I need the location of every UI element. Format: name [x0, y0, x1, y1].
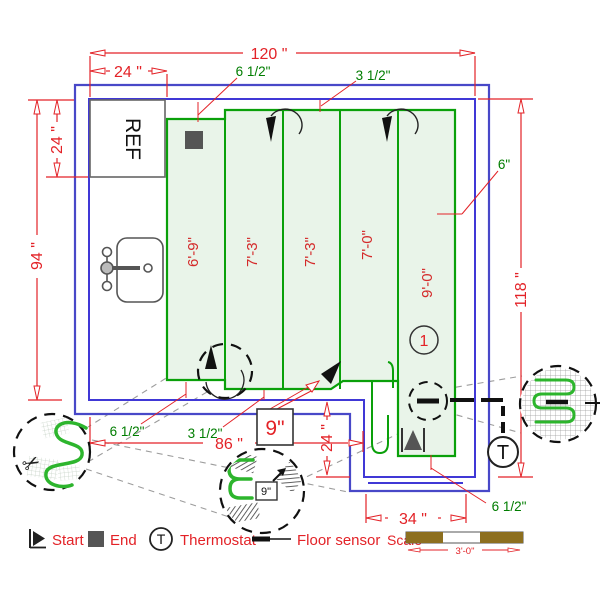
detail-circle-spacing: 9" [220, 449, 306, 533]
dim-step-depth: 24 " [319, 424, 336, 452]
scale-bar: 3'-0" [406, 532, 523, 557]
dim-ref-width: 24 " [114, 64, 142, 81]
thermostat-symbol: T [488, 437, 518, 467]
end-marker-square [185, 131, 203, 149]
clearance-top-left: 6 1/2" [236, 64, 271, 79]
legend-end-label: End [110, 532, 137, 549]
scale-length-label: 3'-0" [456, 546, 475, 557]
legend-thermostat-icon: T [150, 528, 172, 550]
spacing-callout-value: 9" [265, 417, 284, 440]
legend-floor-sensor-label: Floor sensor [297, 532, 380, 549]
strip-label-3: 7'-3" [302, 237, 319, 267]
strip-label-5: 9'-0" [419, 268, 436, 298]
ref-label: REF [121, 118, 144, 160]
legend-thermostat-letter: T [157, 531, 166, 547]
clearance-bottom-left: 6 1/2" [110, 424, 145, 439]
clearance-bottom-center: 3 1/2" [188, 426, 223, 441]
detail-spacing-value: 9" [261, 486, 271, 498]
heating-mat-outline [167, 110, 455, 456]
clearance-right: 6" [498, 157, 511, 172]
clearance-top-right: 3 1/2" [356, 68, 391, 83]
plan-drawing: REF 6'-9" 7'-3" 7'-3" 7'-0" 9'-0" 1 [0, 0, 600, 600]
floor-heating-plan: REF 6'-9" 7'-3" 7'-3" 7'-0" 9'-0" 1 [0, 0, 600, 600]
zone-number: 1 [420, 333, 429, 350]
faucet-handle-bottom-icon [103, 282, 112, 291]
heating-mat [167, 110, 455, 456]
clearance-bottom-right: 6 1/2" [492, 499, 527, 514]
legend: Start End T Thermostat Floor sensor Scal… [30, 528, 523, 557]
strip-label-1: 6'-9" [185, 237, 202, 267]
legend-thermostat-label: Thermostat [180, 532, 257, 549]
legend-start-label: Start [52, 532, 85, 549]
faucet-base-icon [101, 262, 113, 274]
sink [101, 238, 163, 302]
dim-ref-depth: 24 " [49, 126, 66, 154]
strip-label-2: 7'-3" [244, 237, 261, 267]
faucet-handle-top-icon [103, 248, 112, 257]
dim-right-height: 118 " [513, 272, 530, 308]
thermostat-letter: T [497, 442, 509, 464]
dim-overall-width: 120 " [251, 46, 288, 63]
strip-label-4: 7'-0" [359, 230, 376, 260]
floor-sensor-lead [450, 400, 503, 433]
detail-circle-sensor [520, 366, 600, 442]
dim-opening-width: 34 " [399, 511, 427, 528]
detail-circle-cut: ✂ [14, 414, 90, 490]
legend-start-icon [30, 529, 46, 548]
legend-end-icon [88, 531, 104, 547]
dim-left-height: 94 " [29, 242, 46, 270]
